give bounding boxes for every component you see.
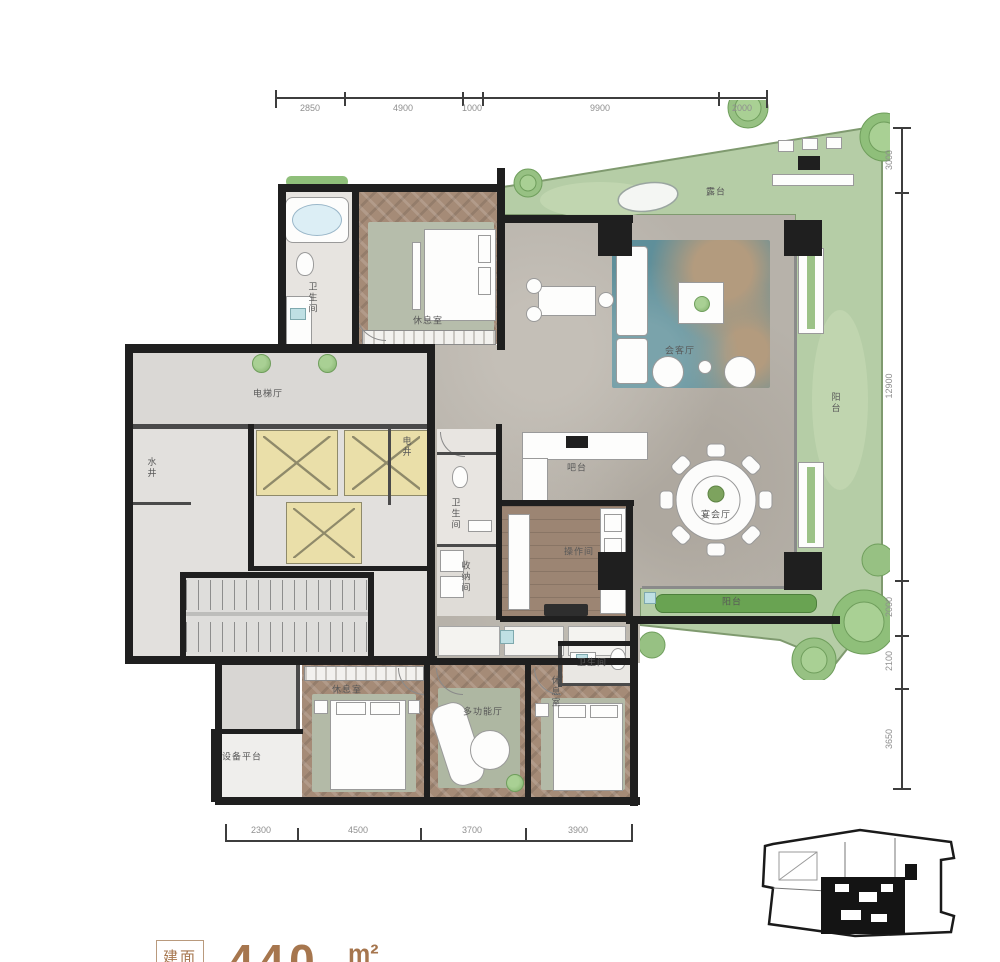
bathtub — [285, 197, 349, 243]
elevator-shaft — [256, 430, 338, 496]
toilet — [452, 466, 468, 488]
dim-top-1: 2850 — [300, 103, 320, 113]
nightstand — [314, 700, 328, 714]
dim-bottom-1: 2300 — [251, 825, 271, 835]
pillow — [590, 705, 618, 718]
bar-sink-icon — [566, 436, 588, 448]
wall — [133, 424, 427, 429]
chaise — [616, 338, 648, 384]
terrace-table — [772, 174, 854, 186]
basin — [290, 308, 306, 320]
room-label-bedroom-left: 休息室 — [332, 683, 362, 696]
wall — [496, 424, 502, 620]
room-label-bedroom-top: 休息室 — [413, 314, 443, 327]
plant-icon — [318, 354, 337, 373]
column — [784, 220, 822, 256]
dim-bottom-3: 3700 — [462, 825, 482, 835]
wall — [125, 344, 133, 664]
room-label-equipment: 设备平台 — [222, 750, 262, 763]
dimension-line-right — [901, 127, 903, 790]
window — [794, 256, 797, 556]
wall — [525, 662, 531, 802]
pillow — [336, 702, 366, 715]
floor-plan-page: 电梯厅 水井 电井 卫生间 休息室 露台 会客厅 阳台 吧台 宴会厅 操作间 卫… — [0, 0, 1000, 962]
dim-top-5: 2000 — [732, 103, 752, 113]
elevator-shaft — [344, 430, 428, 496]
coffee-table — [678, 282, 724, 324]
wall — [352, 184, 359, 350]
armchair — [724, 356, 756, 388]
wall — [211, 729, 303, 734]
dimension-line-top — [275, 97, 767, 99]
dim-right-5: 3650 — [884, 729, 894, 749]
wall — [180, 572, 374, 578]
wall — [626, 506, 633, 624]
room-label-living: 会客厅 — [665, 344, 695, 357]
wall — [497, 168, 505, 350]
elevator-shaft — [286, 502, 362, 564]
wall — [424, 662, 430, 802]
desk-chair — [598, 292, 614, 308]
desk-chair — [526, 306, 542, 322]
planter-trough — [798, 248, 824, 334]
kitchen-island — [508, 514, 530, 610]
wall — [248, 566, 433, 571]
dim-top-4: 9900 — [590, 103, 610, 113]
room-label-bath-mid: 卫生间 — [450, 498, 463, 531]
dim-bottom-2: 4500 — [348, 825, 368, 835]
column — [598, 220, 632, 256]
wall — [437, 544, 497, 547]
wall — [558, 641, 638, 646]
pillow — [478, 235, 491, 263]
dim-right-1: 3000 — [884, 150, 894, 170]
desk-chair — [526, 278, 542, 294]
round-table — [470, 730, 510, 770]
terrace-chair — [802, 138, 818, 150]
room-label-multi-room: 多功能厅 — [463, 705, 503, 718]
room-label-banquet: 宴会厅 — [701, 508, 731, 521]
wall — [278, 184, 505, 192]
side-table — [698, 360, 712, 374]
area-unit: m² — [348, 940, 379, 962]
room-label-kitchen: 操作间 — [564, 545, 594, 558]
floor-equipment — [216, 734, 302, 797]
grill-icon — [798, 156, 820, 170]
dim-right-2: 12900 — [884, 373, 894, 398]
washer — [500, 630, 514, 644]
room-label-elevator-hall: 电梯厅 — [253, 387, 283, 400]
balcony-sink — [644, 592, 656, 604]
dim-right-4: 2100 — [884, 651, 894, 671]
room-label-bar: 吧台 — [567, 461, 587, 474]
wall — [437, 452, 497, 455]
area-badge: 建面 — [156, 940, 204, 962]
dim-right-3: 2000 — [884, 597, 894, 617]
wall — [133, 502, 191, 505]
wall — [634, 616, 840, 624]
dining-table — [654, 438, 778, 562]
staircase — [186, 578, 368, 654]
pillow — [370, 702, 400, 715]
nightstand — [535, 703, 549, 717]
toilet — [296, 252, 314, 276]
column — [784, 552, 822, 590]
desk — [538, 286, 596, 316]
plant-icon — [252, 354, 271, 373]
dim-bottom-4: 3900 — [568, 825, 588, 835]
planter-trough — [798, 462, 824, 548]
floor-corridor-left — [222, 665, 296, 729]
kitchen-unit — [604, 514, 622, 532]
key-plan — [755, 822, 965, 940]
room-label-water-shaft: 水井 — [146, 457, 159, 479]
wall — [125, 344, 435, 353]
armchair — [652, 356, 684, 388]
room-label-terrace: 露台 — [706, 185, 726, 198]
room-label-balcony-right: 阳台 — [830, 392, 843, 414]
plant-icon — [506, 774, 524, 792]
sofa — [616, 246, 648, 336]
dim-top-2: 4900 — [393, 103, 413, 113]
wall — [558, 683, 638, 686]
wall — [500, 500, 634, 506]
room-label-balcony-bottom: 阳台 — [722, 595, 742, 608]
wall — [368, 572, 374, 660]
room-label-electric-shaft: 电井 — [401, 436, 414, 458]
wall — [248, 424, 254, 570]
cabinet — [438, 626, 500, 656]
room-label-storage: 收纳间 — [460, 561, 473, 594]
room-label-bedroom-right: 休息室 — [550, 676, 563, 709]
wall — [500, 616, 634, 622]
wall — [180, 572, 186, 660]
wall — [630, 618, 638, 806]
room-label-bath-bottom: 卫生间 — [577, 656, 607, 669]
wall — [211, 729, 216, 802]
wall — [388, 429, 391, 505]
wall — [296, 662, 300, 732]
dim-top-3: 1000 — [462, 103, 482, 113]
bar-counter — [522, 458, 548, 506]
terrace-chair — [826, 137, 842, 149]
nightstand — [408, 700, 420, 714]
room-label-bath-top: 卫生间 — [307, 282, 320, 315]
wall — [427, 344, 435, 664]
terrace-chair — [778, 140, 794, 152]
cooktop — [544, 604, 588, 616]
window — [642, 586, 786, 589]
wall — [278, 184, 286, 350]
area-number: 440 — [228, 934, 320, 962]
dimension-line-bottom — [225, 840, 632, 842]
pillow — [478, 267, 491, 295]
sink — [468, 520, 492, 532]
bench — [412, 242, 421, 310]
